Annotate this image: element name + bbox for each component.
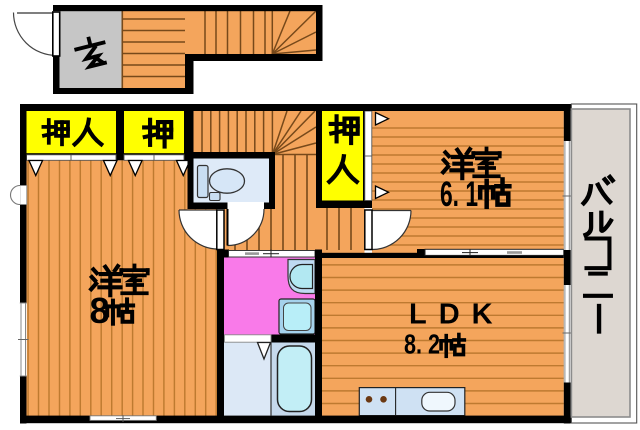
svg-text:8. 2: 8. 2 [404, 329, 440, 360]
svg-text:6. 1: 6. 1 [440, 175, 478, 214]
svg-text:LDK: LDK [409, 299, 505, 331]
